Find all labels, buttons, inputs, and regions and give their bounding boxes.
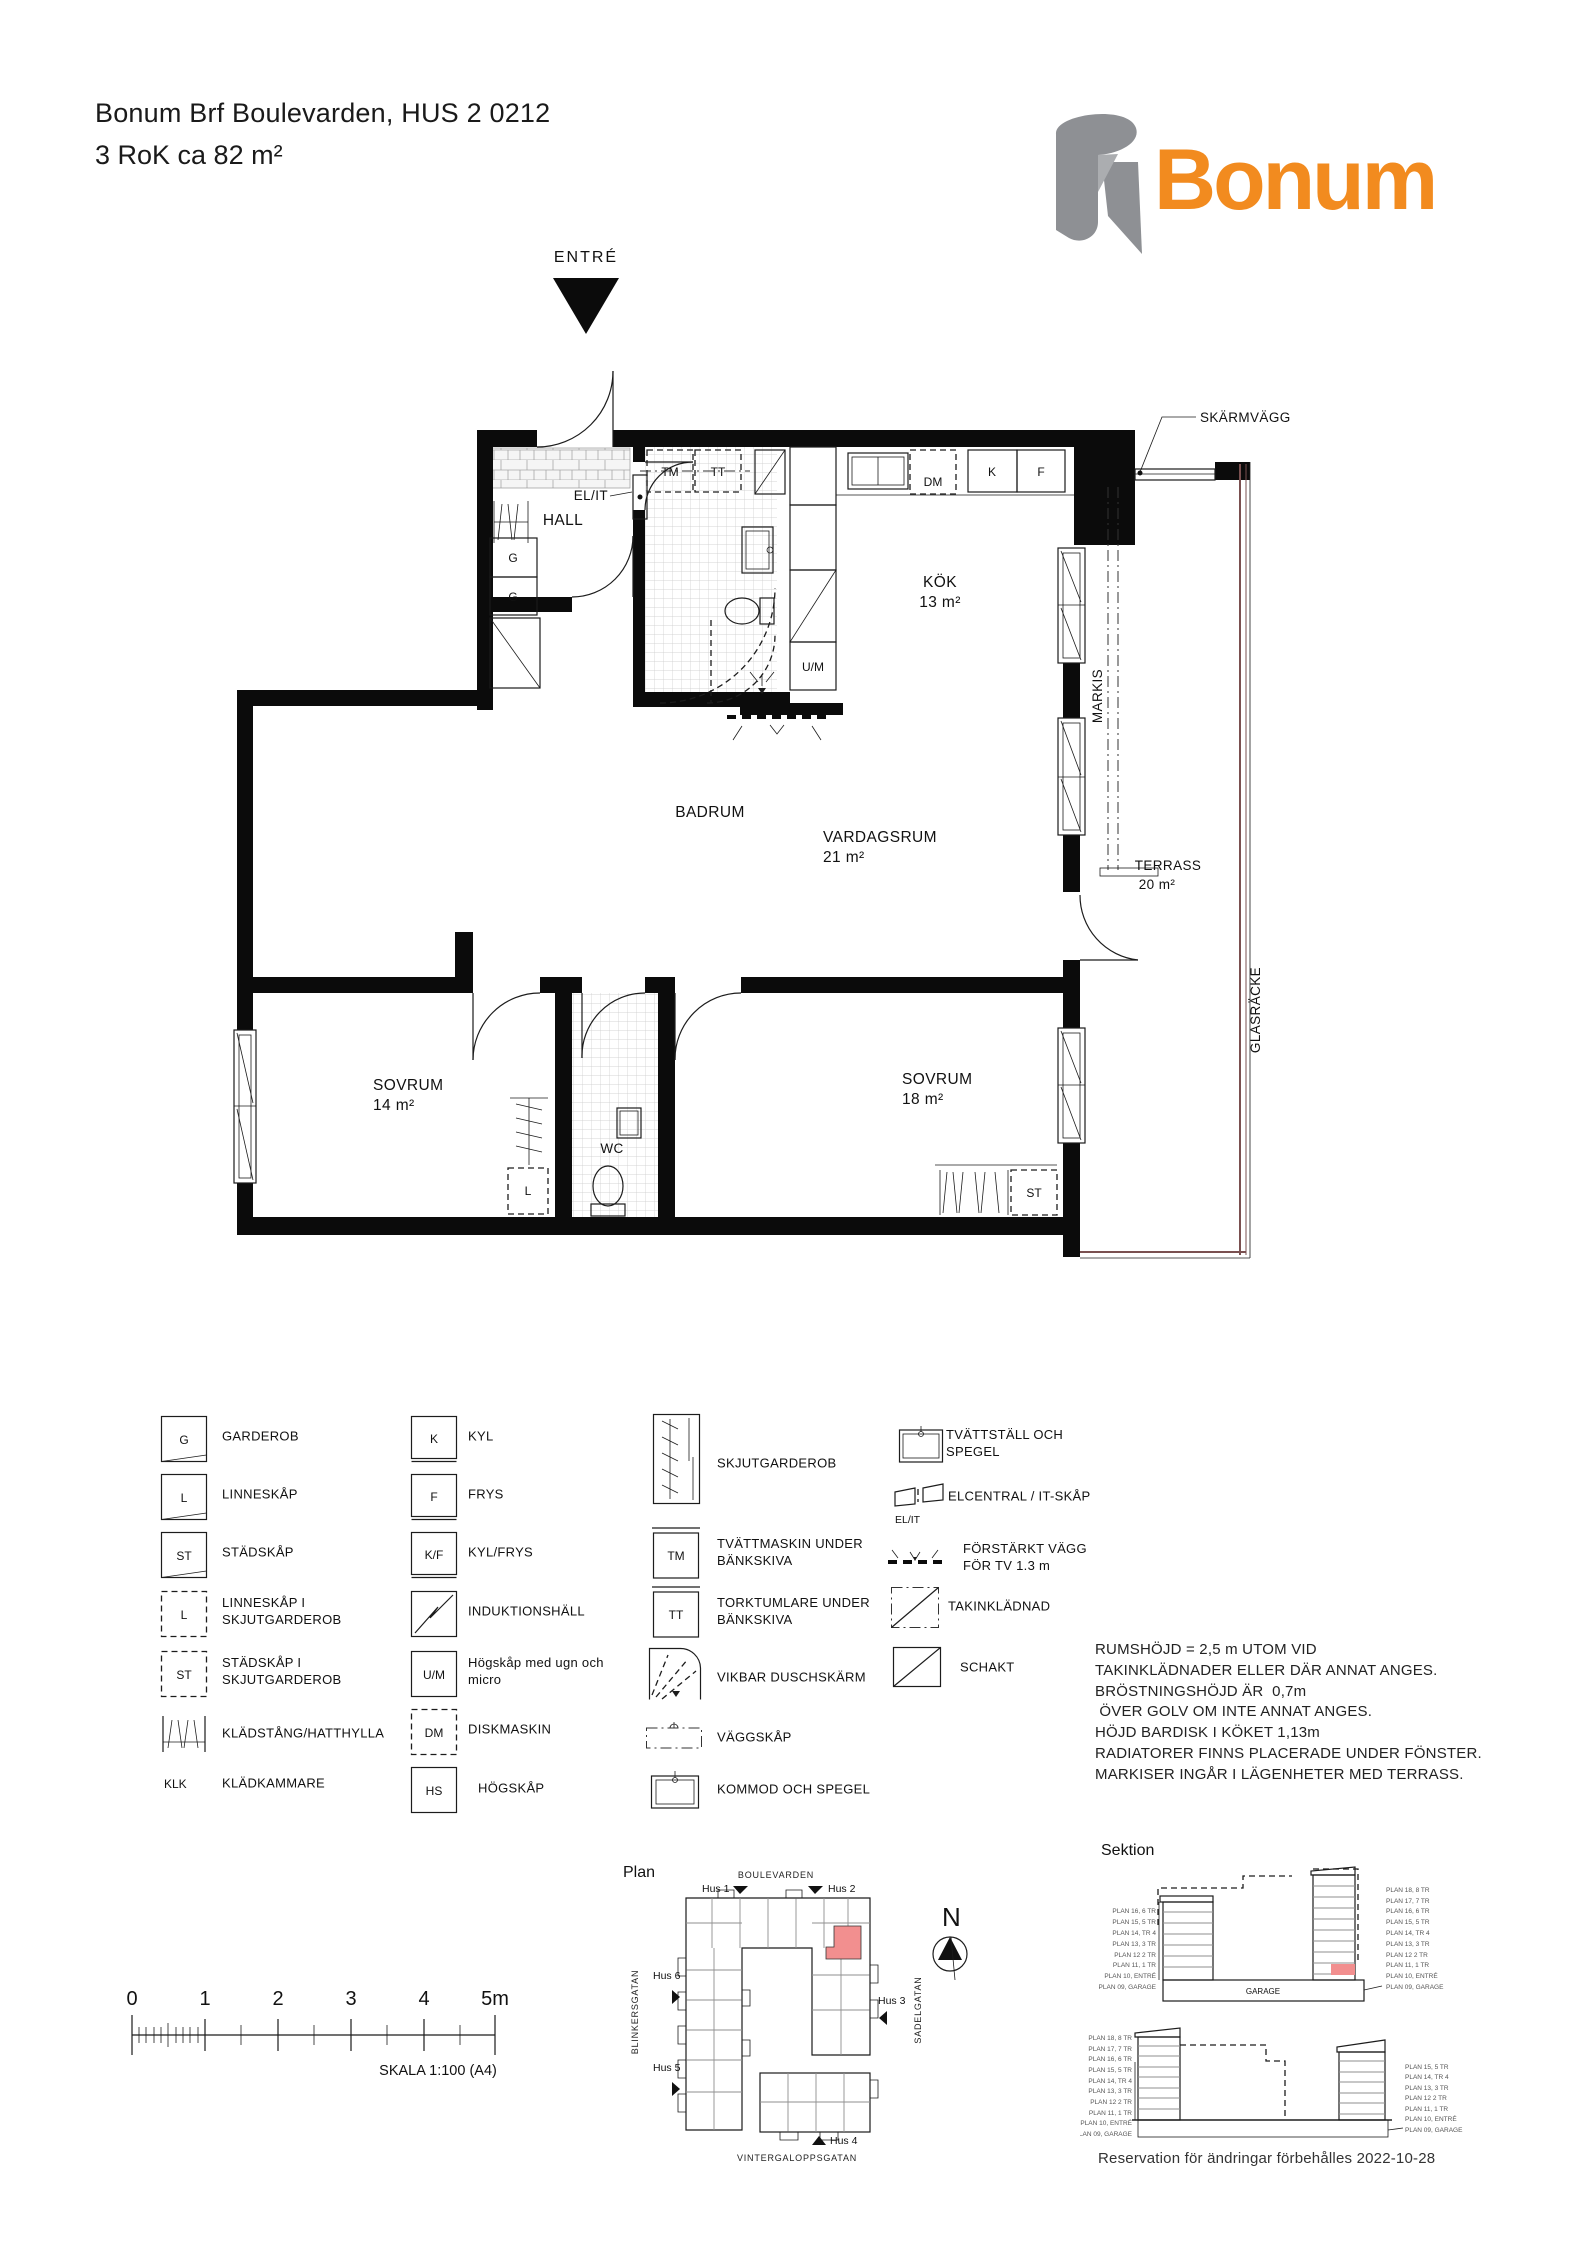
sovrum14-wardrobe: L <box>508 1098 548 1214</box>
legend-label: DISKMASKIN <box>468 1722 606 1739</box>
scale-bar: 0 1 2 3 4 5m SKALA 1:100 (A4) <box>110 1975 530 2085</box>
svg-text:ST: ST <box>176 1549 192 1563</box>
hall-closets: G G <box>490 501 540 688</box>
room-area-kok: 13 m² <box>919 594 961 611</box>
svg-text:K: K <box>430 1432 438 1446</box>
note-line: RADIATORER FINNS PLACERADE UNDER FÖNSTER… <box>1095 1744 1525 1765</box>
legend-symbol-stadskap-skjut: ST <box>160 1650 208 1698</box>
st-tag: ST <box>1026 1186 1042 1200</box>
floorplan-document-page: Bonum Brf Boulevarden, HUS 2 0212 3 RoK … <box>0 0 1588 2246</box>
hus2-label: Hus 2 <box>828 1883 856 1895</box>
legend-label: TVÄTTSTÄLL OCH SPEGEL <box>946 1427 1096 1461</box>
legend-symbol-kommod-icon <box>650 1768 700 1810</box>
svg-text:PLAN 13, 3 TR: PLAN 13, 3 TR <box>1112 1941 1156 1948</box>
svg-text:PLAN 12 2 TR: PLAN 12 2 TR <box>1405 2095 1447 2102</box>
room-label-wc: WC <box>600 1141 623 1156</box>
svg-text:KLK: KLK <box>164 1777 187 1791</box>
svg-text:PLAN 10, ENTRÉ: PLAN 10, ENTRÉ <box>1104 1971 1156 1980</box>
sovrum14-door-arc <box>473 993 540 1060</box>
window-sovrum14 <box>234 1030 256 1183</box>
sovrum18-door-arc <box>675 993 741 1060</box>
room-label-badrum: BADRUM <box>675 804 745 821</box>
bonum-logo-text: Bonum <box>1154 137 1435 223</box>
entry-mat <box>490 448 630 488</box>
legend-label: TAKINKLÄDNAD <box>948 1599 1098 1616</box>
north-label: N <box>942 1902 961 1932</box>
legend-label: STÄDSKÅP <box>222 1545 360 1562</box>
room-label-hall: HALL <box>543 512 583 529</box>
legend-symbol-tm: TM <box>652 1526 700 1580</box>
legend-symbol-induktionshall-icon <box>410 1590 458 1638</box>
note-line: RUMSHÖJD = 2,5 m UTOM VID <box>1095 1640 1525 1661</box>
svg-text:PLAN 10, ENTRÉ: PLAN 10, ENTRÉ <box>1080 2118 1132 2127</box>
legend-label: KLÄDKAMMARE <box>222 1776 360 1793</box>
room-label-terrass: TERRASS <box>1135 858 1202 873</box>
siteplan-title: Plan <box>623 1864 655 1881</box>
skarmvagg-label: SKÄRMVÄGG <box>1200 410 1291 425</box>
svg-text:PLAN 15, 5 TR: PLAN 15, 5 TR <box>1405 2064 1449 2071</box>
street-blinkersgatan: BLINKERSGATAN <box>630 1970 640 2055</box>
legend-symbol-kladstang-icon <box>160 1712 208 1756</box>
room-area-sovrum18: 18 m² <box>902 1091 944 1108</box>
legend-symbol-diskmaskin: DM <box>410 1708 458 1756</box>
wc-tile-floor <box>572 993 658 1217</box>
screen-wall <box>1135 469 1215 480</box>
legend-symbol-kyl: K <box>410 1415 458 1465</box>
svg-text:PLAN 09, GARAGE: PLAN 09, GARAGE <box>1080 2131 1133 2138</box>
hus5-label: Hus 5 <box>653 2062 681 2074</box>
svg-text:PLAN 12 2 TR: PLAN 12 2 TR <box>1114 1952 1156 1959</box>
svg-text:PLAN 11, 1 TR: PLAN 11, 1 TR <box>1113 1962 1156 1969</box>
room-label-kok: KÖK <box>923 573 957 591</box>
hus4-label: Hus 4 <box>830 2135 858 2147</box>
legend-label: LINNESKÅP I SKJUTGARDEROB <box>222 1595 360 1629</box>
legend-label: FRYS <box>468 1487 606 1504</box>
svg-text:PLAN 13, 3 TR: PLAN 13, 3 TR <box>1386 1941 1430 1948</box>
legend-symbol-garderob: G <box>160 1415 208 1463</box>
legend-label: STÄDSKÅP I SKJUTGARDEROB <box>222 1655 360 1689</box>
room-label-sovrum14: SOVRUM <box>373 1077 443 1094</box>
legend-label: FÖRSTÄRKT VÄGG FÖR TV 1.3 m <box>963 1541 1113 1575</box>
sektion-1: GARAGE PLAN 16, 6 TR PLAN 15, 5 TR PLAN … <box>1099 1867 1445 2001</box>
legend-label: TORKTUMLARE UNDER BÄNKSKIVA <box>717 1595 882 1629</box>
legend-symbol-forstarkt-vagg-icon <box>886 1542 946 1576</box>
svg-text:PLAN 14, TR 4: PLAN 14, TR 4 <box>1088 2078 1132 2085</box>
room-label-sovrum18: SOVRUM <box>902 1071 972 1088</box>
legend-label: KYL <box>468 1429 606 1446</box>
svg-text:PLAN 11, 1 TR: PLAN 11, 1 TR <box>1386 1962 1429 1969</box>
tt-tag: TT <box>711 465 726 479</box>
scale-tick-4: 4 <box>418 1988 429 2010</box>
legend-symbol-takinkladnad-icon <box>890 1586 940 1630</box>
street-vintergaloppsgatan: VINTERGALOPPSGATAN <box>737 2153 857 2163</box>
legend-label: SCHAKT <box>960 1660 1110 1677</box>
glasracke-label: GLASRÄCKE <box>1248 967 1263 1053</box>
scale-tick-1: 1 <box>199 1988 210 2010</box>
f-tag: F <box>1037 465 1044 479</box>
svg-text:PLAN 14, TR 4: PLAN 14, TR 4 <box>1386 1930 1430 1937</box>
hus1-arrow-icon <box>733 1886 748 1894</box>
svg-text:PLAN 10, ENTRÉ: PLAN 10, ENTRÉ <box>1386 1971 1438 1980</box>
svg-text:ST: ST <box>176 1668 192 1682</box>
svg-text:PLAN 09, GARAGE: PLAN 09, GARAGE <box>1386 1984 1444 1991</box>
legend-label: VÄGGSKÅP <box>717 1730 882 1747</box>
g-tag-2: G <box>508 590 517 604</box>
svg-text:PLAN 13, 3 TR: PLAN 13, 3 TR <box>1405 2085 1449 2092</box>
dm-tag: DM <box>924 475 943 489</box>
um-tag: U/M <box>802 660 824 674</box>
note-line: HÖJD BARDISK I KÖKET 1,13m <box>1095 1723 1525 1744</box>
scale-caption: SKALA 1:100 (A4) <box>379 2063 497 2079</box>
legend-symbol-klk: KLK <box>160 1772 208 1794</box>
svg-text:U/M: U/M <box>423 1668 445 1682</box>
scale-tick-5: 5m <box>481 1988 509 2010</box>
scale-tick-0: 0 <box>126 1988 137 2010</box>
hus4-arrow-icon <box>812 2136 826 2145</box>
markis-label: MARKIS <box>1090 669 1105 723</box>
terrace-door-arc <box>1080 895 1138 960</box>
hus6-label: Hus 6 <box>653 1970 681 1982</box>
svg-text:TM: TM <box>667 1549 684 1563</box>
legend-label: LINNESKÅP <box>222 1487 360 1504</box>
legend-label: VIKBAR DUSCHSKÄRM <box>717 1670 882 1687</box>
legend-symbol-linneskap-skjut: L <box>160 1590 208 1638</box>
room-area-vardagsrum: 21 m² <box>823 849 865 866</box>
tm-tag: TM <box>661 465 678 479</box>
legend-symbol-tvattstall-icon <box>898 1424 944 1464</box>
svg-text:PLAN 14, TR 4: PLAN 14, TR 4 <box>1405 2074 1449 2081</box>
plan-notes: RUMSHÖJD = 2,5 m UTOM VID TAKINKLÄDNADER… <box>1095 1640 1525 1786</box>
legend-symbol-kylfrys: K/F <box>410 1531 458 1581</box>
svg-text:PLAN 15, 5 TR: PLAN 15, 5 TR <box>1112 1919 1156 1926</box>
room-area-sovrum14: 14 m² <box>373 1097 415 1114</box>
elit-tag: EL/IT <box>574 488 608 503</box>
scale-tick-2: 2 <box>272 1988 283 2010</box>
highlighted-apartment <box>826 1926 861 1959</box>
hall-door-arc <box>572 536 633 597</box>
svg-text:PLAN 17, 7 TR: PLAN 17, 7 TR <box>1386 1898 1430 1905</box>
svg-text:PLAN 15, 5 TR: PLAN 15, 5 TR <box>1088 2067 1132 2074</box>
note-line: BRÖSTNINGSHÖJD ÄR 0,7m <box>1095 1682 1525 1703</box>
legend-elit-sub: EL/IT <box>895 1514 921 1526</box>
svg-text:PLAN 18, 8 TR: PLAN 18, 8 TR <box>1386 1887 1430 1894</box>
l-tag: L <box>525 1184 532 1198</box>
legend-label: INDUKTIONSHÄLL <box>468 1604 606 1621</box>
svg-text:PLAN 11, 1 TR: PLAN 11, 1 TR <box>1089 2110 1132 2117</box>
k-tag: K <box>988 465 996 479</box>
hus2-arrow-icon <box>808 1886 823 1894</box>
legend-symbol-linneskap: L <box>160 1473 208 1521</box>
kitchen-fixtures: DM K F U/M <box>755 447 1074 690</box>
hus3-arrow-icon <box>879 2011 887 2025</box>
legend-label: Högskåp med ugn och micro <box>468 1655 606 1689</box>
page-title: Bonum Brf Boulevarden, HUS 2 0212 <box>95 98 550 129</box>
floor-plan-drawing: ENTRÉ <box>150 220 1380 1280</box>
revision-note: Reservation för ändringar förbehålles 20… <box>1098 2150 1435 2167</box>
legend-symbol-hogskap: HS <box>410 1766 458 1814</box>
note-line: ÖVER GOLV OM INTE ANNAT ANGES. <box>1095 1702 1525 1723</box>
legend-symbol-schakt-icon <box>892 1646 942 1688</box>
legend-symbol-tt: TT <box>652 1585 700 1639</box>
north-compass-icon: N <box>933 1902 967 1980</box>
svg-text:PLAN 14, TR 4: PLAN 14, TR 4 <box>1112 1930 1156 1937</box>
highlighted-unit-section1 <box>1331 1964 1355 1975</box>
room-label-vardagsrum: VARDAGSRUM <box>823 829 937 846</box>
svg-text:F: F <box>430 1490 437 1504</box>
svg-text:TT: TT <box>669 1608 684 1622</box>
garage-label-1: GARAGE <box>1246 1987 1280 1996</box>
svg-text:G: G <box>179 1433 188 1447</box>
street-sadelgatan: SADELGATAN <box>913 1976 923 2043</box>
legend-label: TVÄTTMASKIN UNDER BÄNKSKIVA <box>717 1536 882 1570</box>
svg-text:PLAN 16, 6 TR: PLAN 16, 6 TR <box>1112 1908 1156 1915</box>
svg-text:L: L <box>181 1608 188 1622</box>
legend-symbol-um: U/M <box>410 1650 458 1698</box>
legend-label: KYL/FRYS <box>468 1545 606 1562</box>
note-line: MARKISER INGÅR I LÄGENHETER MED TERRASS. <box>1095 1765 1525 1786</box>
legend-symbol-frys: F <box>410 1473 458 1523</box>
svg-text:DM: DM <box>425 1726 444 1740</box>
legend-symbol-duschskarm-icon <box>648 1647 702 1701</box>
street-boulevarden: BOULEVARDEN <box>738 1870 814 1880</box>
svg-text:PLAN 09, GARAGE: PLAN 09, GARAGE <box>1099 1984 1157 1991</box>
sovrum18-wardrobe: ST <box>935 1165 1057 1215</box>
svg-text:PLAN 10, ENTRÉ: PLAN 10, ENTRÉ <box>1405 2114 1457 2123</box>
page-subtitle: 3 RoK ca 82 m² <box>95 140 283 171</box>
sektion-2: PLAN 18, 8 TR PLAN 17, 7 TR PLAN 16, 6 T… <box>1080 2028 1463 2138</box>
legend-symbol-skjutgarderob-icon <box>652 1413 702 1505</box>
svg-text:PLAN 12 2 TR: PLAN 12 2 TR <box>1386 1952 1428 1959</box>
entry-arrow-icon <box>553 278 619 334</box>
hus1-label: Hus 1 <box>702 1883 730 1895</box>
note-line: TAKINKLÄDNADER ELLER DÄR ANNAT ANGES. <box>1095 1661 1525 1682</box>
window-vardagsrum-1 <box>1058 548 1085 663</box>
entry-label: ENTRÉ <box>554 247 618 266</box>
legend-label: SKJUTGARDEROB <box>717 1456 882 1473</box>
legend-symbol-stadskap: ST <box>160 1531 208 1579</box>
svg-text:L: L <box>181 1491 188 1505</box>
legend-label: ELCENTRAL / IT-SKÅP <box>948 1489 1098 1506</box>
legend-label: GARDEROB <box>222 1429 360 1446</box>
legend-symbol-vaggskap-icon <box>645 1720 703 1750</box>
sektion-diagrams: Sektion GARAGE PLAN 16, 6 TR PLAN 15, 5 … <box>1080 1835 1550 2165</box>
legend-label: HÖGSKÅP <box>478 1781 616 1798</box>
svg-text:PLAN 13, 3 TR: PLAN 13, 3 TR <box>1088 2088 1132 2095</box>
entry-door-arc <box>537 371 613 447</box>
svg-text:PLAN 09, GARAGE: PLAN 09, GARAGE <box>1405 2127 1463 2134</box>
svg-text:PLAN 12 2 TR: PLAN 12 2 TR <box>1090 2099 1132 2106</box>
legend-label: KOMMOD OCH SPEGEL <box>717 1782 882 1799</box>
site-plan: Plan BOULEVARDEN BLINKERSGATAN SADELGATA… <box>590 1830 1090 2240</box>
svg-text:PLAN 15, 5 TR: PLAN 15, 5 TR <box>1386 1919 1430 1926</box>
svg-text:PLAN 16, 6 TR: PLAN 16, 6 TR <box>1088 2056 1132 2063</box>
g-tag-1: G <box>508 551 517 565</box>
window-sovrum18 <box>1058 1028 1085 1143</box>
scale-tick-3: 3 <box>345 1988 356 2010</box>
sektion-title: Sektion <box>1101 1842 1154 1859</box>
legend-label: KLÄDSTÅNG/HATTHYLLA <box>222 1726 360 1743</box>
tv-wall-symbol <box>727 717 827 740</box>
hus3-label: Hus 3 <box>878 1995 906 2007</box>
svg-text:PLAN 18, 8 TR: PLAN 18, 8 TR <box>1088 2035 1132 2042</box>
legend-symbol-elcentral-icon: EL/IT <box>893 1482 949 1528</box>
window-vardagsrum-2 <box>1058 718 1085 835</box>
svg-text:PLAN 17, 7 TR: PLAN 17, 7 TR <box>1088 2046 1132 2053</box>
svg-text:PLAN 11, 1 TR: PLAN 11, 1 TR <box>1405 2106 1448 2113</box>
building-hus4-outline <box>760 2073 870 2132</box>
room-area-terrass: 20 m² <box>1139 877 1176 892</box>
svg-text:PLAN 16, 6 TR: PLAN 16, 6 TR <box>1386 1908 1430 1915</box>
svg-text:K/F: K/F <box>425 1548 444 1562</box>
svg-text:HS: HS <box>426 1784 443 1798</box>
